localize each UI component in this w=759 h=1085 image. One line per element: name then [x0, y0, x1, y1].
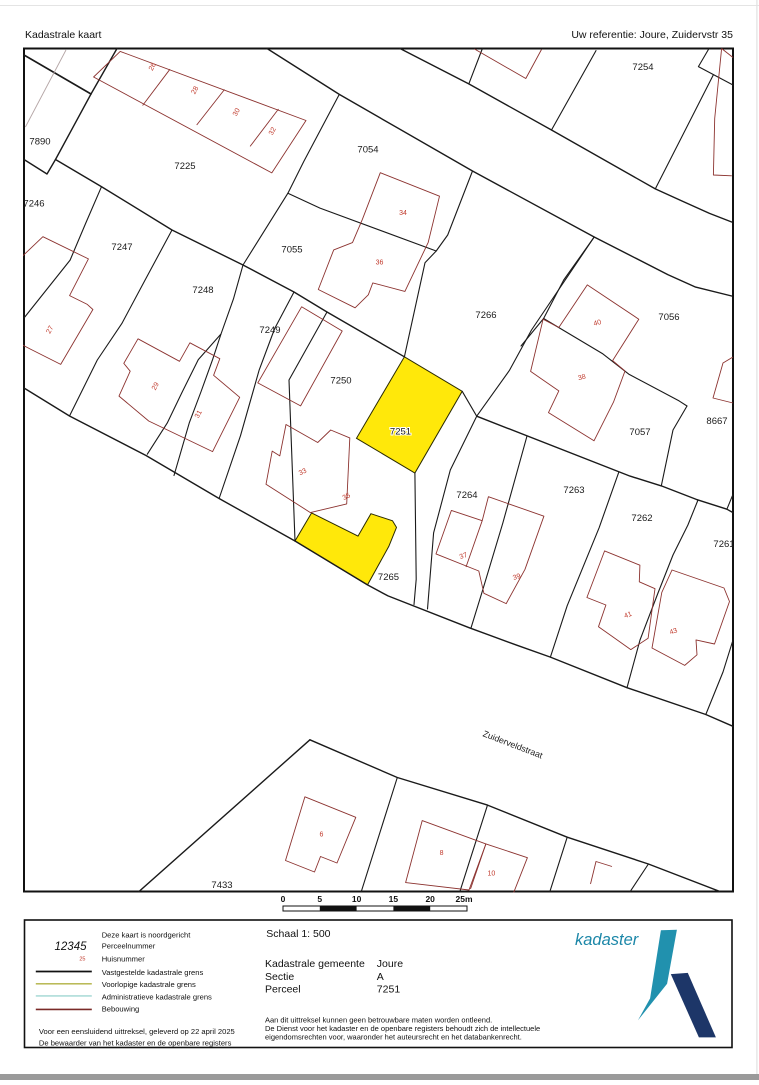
svg-text:kadaster: kadaster: [575, 931, 640, 949]
svg-text:Voor een eensluidend uittrekse: Voor een eensluidend uittreksel, gelever…: [39, 1027, 235, 1036]
svg-text:7433: 7433: [211, 880, 232, 891]
svg-text:Vastgestelde kadastrale grens: Vastgestelde kadastrale grens: [102, 968, 204, 977]
svg-text:12345: 12345: [55, 941, 88, 953]
svg-text:7251: 7251: [390, 427, 411, 438]
svg-text:7265: 7265: [378, 572, 399, 583]
svg-text:20: 20: [425, 894, 435, 904]
svg-text:7262: 7262: [631, 513, 652, 524]
svg-text:7251: 7251: [377, 984, 401, 996]
svg-text:7248: 7248: [192, 285, 213, 296]
svg-text:25: 25: [79, 957, 85, 963]
svg-text:Bebouwing: Bebouwing: [102, 1005, 140, 1014]
svg-text:Administratieve kadastrale gre: Administratieve kadastrale grens: [102, 992, 212, 1001]
svg-text:6: 6: [320, 832, 324, 839]
svg-text:Kadastrale gemeente: Kadastrale gemeente: [265, 958, 365, 970]
svg-text:34: 34: [399, 210, 407, 217]
svg-text:7266: 7266: [475, 310, 496, 321]
svg-text:5: 5: [317, 894, 322, 904]
svg-text:8667: 8667: [706, 416, 727, 427]
svg-text:7890: 7890: [29, 137, 50, 148]
svg-text:7055: 7055: [281, 245, 302, 256]
svg-text:7246: 7246: [23, 199, 44, 210]
svg-text:Deze kaart is noordgericht: Deze kaart is noordgericht: [102, 931, 192, 940]
svg-text:Joure: Joure: [377, 958, 403, 970]
svg-text:8: 8: [440, 850, 444, 857]
svg-text:7261: 7261: [713, 539, 734, 550]
svg-text:7250: 7250: [330, 376, 351, 387]
svg-text:Schaal 1: 500: Schaal 1: 500: [266, 928, 330, 940]
svg-text:De bewaarder van het kadaster: De bewaarder van het kadaster en de open…: [39, 1038, 232, 1047]
svg-text:15: 15: [389, 894, 399, 904]
svg-text:36: 36: [376, 260, 384, 267]
svg-text:Voorlopige kadastrale grens: Voorlopige kadastrale grens: [102, 980, 196, 989]
svg-text:A: A: [377, 971, 384, 983]
svg-text:7249: 7249: [259, 325, 280, 336]
svg-text:Perceel: Perceel: [265, 984, 301, 996]
svg-text:7263: 7263: [563, 485, 584, 496]
svg-text:Kadastrale kaart: Kadastrale kaart: [25, 29, 102, 41]
svg-text:7057: 7057: [629, 427, 650, 438]
svg-text:7054: 7054: [357, 145, 378, 156]
svg-text:7264: 7264: [456, 490, 477, 501]
svg-text:7247: 7247: [111, 242, 132, 253]
svg-text:7056: 7056: [658, 312, 679, 323]
svg-text:Uw referentie: Joure, Zuidervs: Uw referentie: Joure, Zuidervstr 35: [571, 29, 733, 41]
svg-text:7254: 7254: [632, 62, 653, 73]
svg-text:25m: 25m: [455, 894, 472, 904]
svg-text:7225: 7225: [174, 161, 195, 172]
svg-text:Huisnummer: Huisnummer: [102, 955, 146, 964]
svg-text:Perceelnummer: Perceelnummer: [102, 942, 156, 951]
svg-text:10: 10: [488, 871, 496, 878]
svg-text:10: 10: [352, 894, 362, 904]
svg-text:Sectie: Sectie: [265, 971, 294, 983]
svg-text:eigendomsrechten voor, waarond: eigendomsrechten voor, waaronder het aut…: [265, 1032, 522, 1041]
svg-text:0: 0: [281, 894, 286, 904]
